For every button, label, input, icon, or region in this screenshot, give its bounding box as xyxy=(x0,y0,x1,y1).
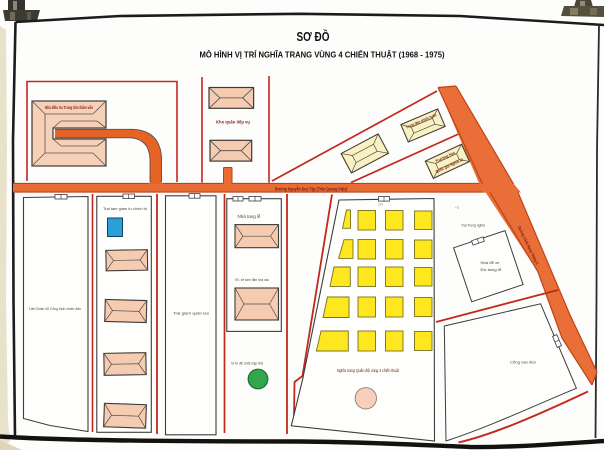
svg-text:Trại tạm giam tù chính trị: Trại tạm giam tù chính trị xyxy=(103,206,147,211)
svg-text:Nhà tang lễ: Nhà tang lễ xyxy=(238,214,262,219)
svg-text:SƠ ĐỒ: SƠ ĐỒ xyxy=(297,29,330,44)
svg-text:Kho quân tiếp vụ: Kho quân tiếp vụ xyxy=(216,120,250,125)
svg-text:Nhà để xe: Nhà để xe xyxy=(481,260,501,265)
svg-text:MÔ HÌNH VỊ TRÍ NGHĨA TRANG VÙN: MÔ HÌNH VỊ TRÍ NGHĨA TRANG VÙNG 4 CHIẾN … xyxy=(200,49,445,60)
svg-text:Nghĩa trang Quân đội vùng 4 ch: Nghĩa trang Quân đội vùng 4 chiến thuật xyxy=(337,368,400,373)
svg-text:Trại Trung nghĩa: Trại Trung nghĩa xyxy=(461,223,486,228)
svg-text:+0: +0 xyxy=(455,205,460,210)
svg-text:Trại giam quân lao: Trại giam quân lao xyxy=(173,311,210,316)
svg-text:KV. vệ sinh tắm rửa xác: KV. vệ sinh tắm rửa xác xyxy=(235,277,269,282)
svg-text:Cổng vào đền: Cổng vào đền xyxy=(510,360,536,365)
svg-text:Vị trí để chôn tập thể: Vị trí để chôn tập thể xyxy=(231,361,263,366)
svg-text:2m: 2m xyxy=(378,203,383,207)
svg-text:Đồ tang lễ: Đồ tang lễ xyxy=(481,267,503,272)
svg-text:Đường Nguyễn Duy Tập (Trần Q: Đường Nguyễn Duy Tập (Trần Quang Diệu) xyxy=(275,186,347,192)
svg-text:Nhà điều tra Trung tâm thẩm vấ: Nhà điều tra Trung tâm thẩm vấn xyxy=(45,105,93,110)
svg-text:Liên Đoàn 40 Công binh chiến đ: Liên Đoàn 40 Công binh chiến đấu xyxy=(29,306,81,311)
